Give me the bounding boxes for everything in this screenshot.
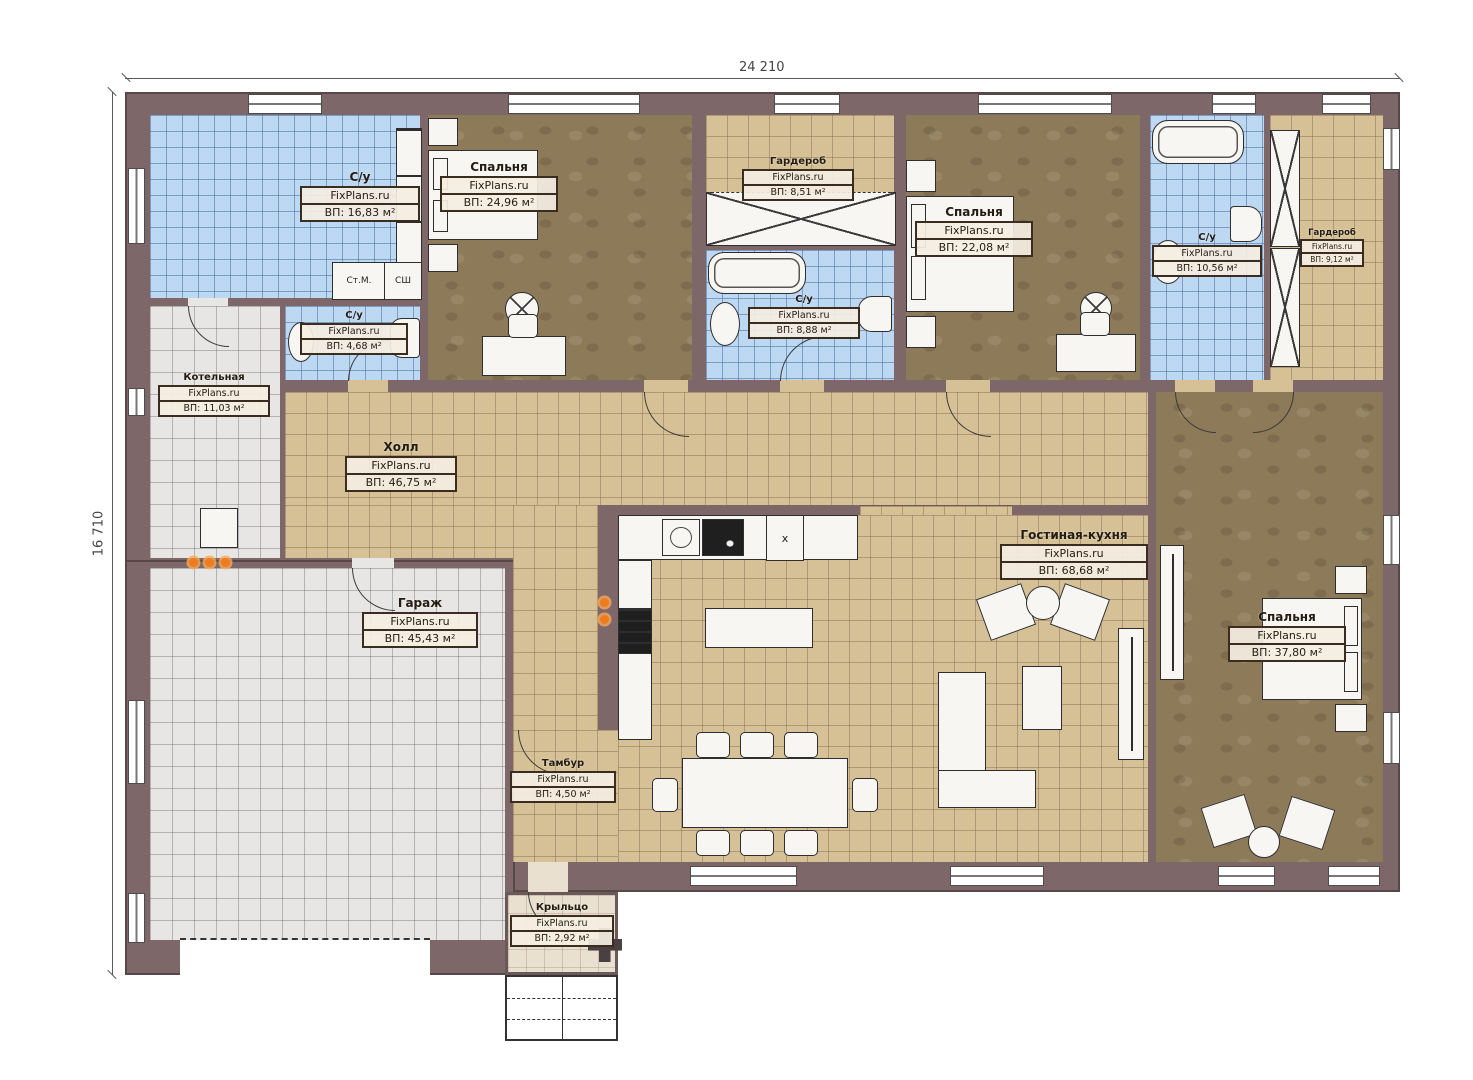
window	[508, 94, 640, 114]
radiator-manifold	[205, 558, 214, 567]
tall-cabinet	[1160, 545, 1184, 680]
window	[950, 866, 1044, 886]
door-opening	[352, 558, 394, 568]
washing-machine: Ст.М.	[332, 262, 386, 300]
room-name: Гараж	[362, 596, 478, 610]
room-name: Спальня	[1228, 610, 1346, 624]
chair	[740, 830, 774, 856]
nightstand	[1335, 704, 1367, 732]
room-hall-arm-floor	[285, 505, 513, 558]
room-label-wardrobe-1: Гардероб FixPlans.ruВП: 8,51 м²	[742, 156, 854, 201]
desk	[482, 336, 566, 376]
pillow	[1344, 652, 1358, 692]
room-label-living-kitchen: Гостиная-кухня FixPlans.ruВП: 68,68 м²	[1000, 528, 1148, 580]
nightstand	[906, 316, 936, 348]
room-area: ВП: 2,92 м²	[512, 932, 612, 945]
room-area: ВП: 22,08 м²	[917, 240, 1031, 255]
room-label-bathroom-3: С/у FixPlans.ruВП: 10,56 м²	[1152, 232, 1262, 277]
room-area: ВП: 9,12 м²	[1302, 254, 1362, 265]
room-name: Спальня	[440, 160, 558, 174]
room-label-bathroom-1: С/у FixPlans.ruВП: 16,83 м²	[300, 170, 420, 222]
watermark: FixPlans.ru	[512, 917, 612, 932]
room-name: Котельная	[158, 372, 270, 383]
vent-label: x	[782, 532, 789, 545]
window	[1328, 866, 1380, 886]
chair	[652, 778, 678, 812]
watermark: FixPlans.ru	[512, 773, 614, 788]
boiler-unit	[200, 508, 238, 548]
room-label-bedroom-1: Спальня FixPlans.ruВП: 24,96 м²	[440, 160, 558, 212]
chair	[696, 830, 730, 856]
room-label-wardrobe-2: Гардероб FixPlans.ruВП: 9,12 м²	[1300, 228, 1364, 267]
window	[1322, 94, 1371, 114]
vent-cabinet: x	[766, 515, 804, 561]
dining-table	[682, 758, 848, 828]
room-area: ВП: 8,51 м²	[744, 186, 852, 199]
window	[248, 94, 322, 114]
room-area: ВП: 8,88 м²	[750, 324, 858, 337]
window	[1218, 866, 1275, 886]
watermark: FixPlans.ru	[750, 309, 858, 324]
window	[1383, 712, 1400, 764]
chair	[852, 778, 878, 812]
dimension-height-label: 16 710	[91, 507, 106, 561]
room-name: С/у	[300, 170, 420, 184]
sofa-corner-bottom	[938, 770, 1036, 808]
pillow	[911, 256, 926, 300]
room-name: Гардероб	[742, 156, 854, 167]
garage-door-dashed-line	[180, 938, 430, 940]
dimension-line-top	[125, 78, 1400, 79]
room-area: ВП: 68,68 м²	[1002, 563, 1146, 578]
watermark: FixPlans.ru	[1002, 546, 1146, 563]
room-area: ВП: 4,50 м²	[512, 788, 614, 801]
round-table	[1026, 586, 1060, 620]
room-label-vestibule: Тамбур FixPlans.ruВП: 4,50 м²	[510, 758, 616, 803]
room-label-hall: Холл FixPlans.ruВП: 46,75 м²	[345, 440, 457, 492]
room-name: Холл	[345, 440, 457, 454]
radiator-manifold	[600, 598, 609, 607]
window	[128, 893, 145, 943]
porch-steps	[505, 975, 618, 1041]
bathtub	[708, 252, 806, 294]
window	[774, 94, 840, 114]
round-table	[1248, 826, 1280, 858]
stove	[702, 519, 744, 556]
room-area: ВП: 16,83 м²	[302, 205, 418, 220]
room-area: ВП: 24,96 м²	[442, 195, 556, 210]
dimension-width-label: 24 210	[735, 60, 789, 75]
door-opening	[946, 380, 990, 392]
kitchen-sink	[662, 519, 700, 556]
room-area: ВП: 46,75 м²	[347, 475, 455, 490]
nightstand	[428, 118, 458, 146]
room-name: Тамбур	[510, 758, 616, 769]
window	[128, 388, 145, 416]
chair	[1080, 312, 1110, 336]
pillow	[1344, 606, 1358, 646]
door-opening	[528, 862, 568, 892]
nightstand	[906, 160, 936, 192]
watermark: FixPlans.ru	[302, 188, 418, 205]
room-name: Спальня	[915, 205, 1033, 219]
watermark: FixPlans.ru	[442, 178, 556, 195]
nightstand	[1335, 566, 1367, 594]
chair	[784, 732, 818, 758]
dryer: СШ	[384, 262, 422, 300]
room-area: ВП: 11,03 м²	[160, 402, 268, 415]
door-opening	[780, 380, 824, 392]
watermark: FixPlans.ru	[1154, 247, 1260, 262]
watermark: FixPlans.ru	[160, 387, 268, 402]
watermark: FixPlans.ru	[347, 458, 455, 475]
door-opening	[644, 380, 688, 392]
bathtub	[1152, 120, 1244, 164]
chair	[696, 732, 730, 758]
coffee-table	[1022, 666, 1062, 730]
nightstand	[428, 244, 458, 272]
desk	[1056, 334, 1136, 372]
watermark: FixPlans.ru	[917, 223, 1031, 240]
chair	[740, 732, 774, 758]
door-opening	[1175, 380, 1215, 392]
room-name: Гостиная-кухня	[1000, 528, 1148, 542]
radiator-manifold	[600, 615, 609, 624]
room-corridor-floor	[513, 505, 598, 730]
dryer-label: СШ	[395, 276, 411, 286]
closet-unit	[1270, 130, 1300, 247]
room-label-garage: Гараж FixPlans.ruВП: 45,43 м²	[362, 596, 478, 648]
watermark: FixPlans.ru	[1230, 628, 1344, 645]
radiator-manifold	[189, 558, 198, 567]
kitchen-island	[705, 608, 813, 648]
garage-door-opening	[180, 940, 430, 975]
room-label-boiler: Котельная FixPlans.ruВП: 11,03 м²	[158, 372, 270, 417]
room-area: ВП: 10,56 м²	[1154, 262, 1260, 275]
room-label-bathroom-4: С/у FixPlans.ruВП: 4,68 м²	[300, 310, 408, 355]
room-label-bedroom-2: Спальня FixPlans.ruВП: 22,08 м²	[915, 205, 1033, 257]
room-label-bedroom-3: Спальня FixPlans.ruВП: 37,80 м²	[1228, 610, 1346, 662]
chair	[784, 830, 818, 856]
door-opening	[188, 298, 228, 306]
tv-cabinet	[1118, 628, 1144, 760]
window	[1383, 128, 1400, 170]
window	[690, 866, 797, 886]
room-area: ВП: 45,43 м²	[364, 631, 476, 646]
radiator-manifold	[221, 558, 230, 567]
watermark: FixPlans.ru	[1302, 241, 1362, 254]
window	[1383, 515, 1400, 565]
watermark: FixPlans.ru	[364, 614, 476, 631]
room-area: ВП: 4,68 м²	[302, 340, 406, 353]
watermark: FixPlans.ru	[302, 325, 406, 340]
toilet	[858, 296, 892, 332]
door-opening	[348, 380, 388, 392]
room-label-porch: Крыльцо FixPlans.ruВП: 2,92 м²	[510, 902, 614, 947]
dimension-line-left	[112, 92, 113, 975]
washing-machine-label: Ст.М.	[346, 276, 371, 286]
room-area: ВП: 37,80 м²	[1230, 645, 1344, 660]
floor-plan: 24 210 16 710	[0, 0, 1473, 1080]
room-name: С/у	[748, 294, 860, 305]
hall-living-opening	[860, 505, 1012, 515]
window	[1212, 94, 1256, 114]
closet-unit	[1270, 248, 1300, 367]
room-name: С/у	[300, 310, 408, 321]
room-name: С/у	[1152, 232, 1262, 243]
room-label-bathroom-2: С/у FixPlans.ruВП: 8,88 м²	[748, 294, 860, 339]
chair	[508, 314, 538, 338]
door-opening	[1253, 380, 1293, 392]
oven-stack	[618, 608, 652, 654]
window	[128, 168, 145, 244]
room-name: Крыльцо	[510, 902, 614, 913]
watermark: FixPlans.ru	[744, 171, 852, 186]
room-name: Гардероб	[1300, 228, 1364, 238]
window	[128, 700, 145, 784]
sink	[710, 302, 740, 346]
window	[978, 94, 1112, 114]
